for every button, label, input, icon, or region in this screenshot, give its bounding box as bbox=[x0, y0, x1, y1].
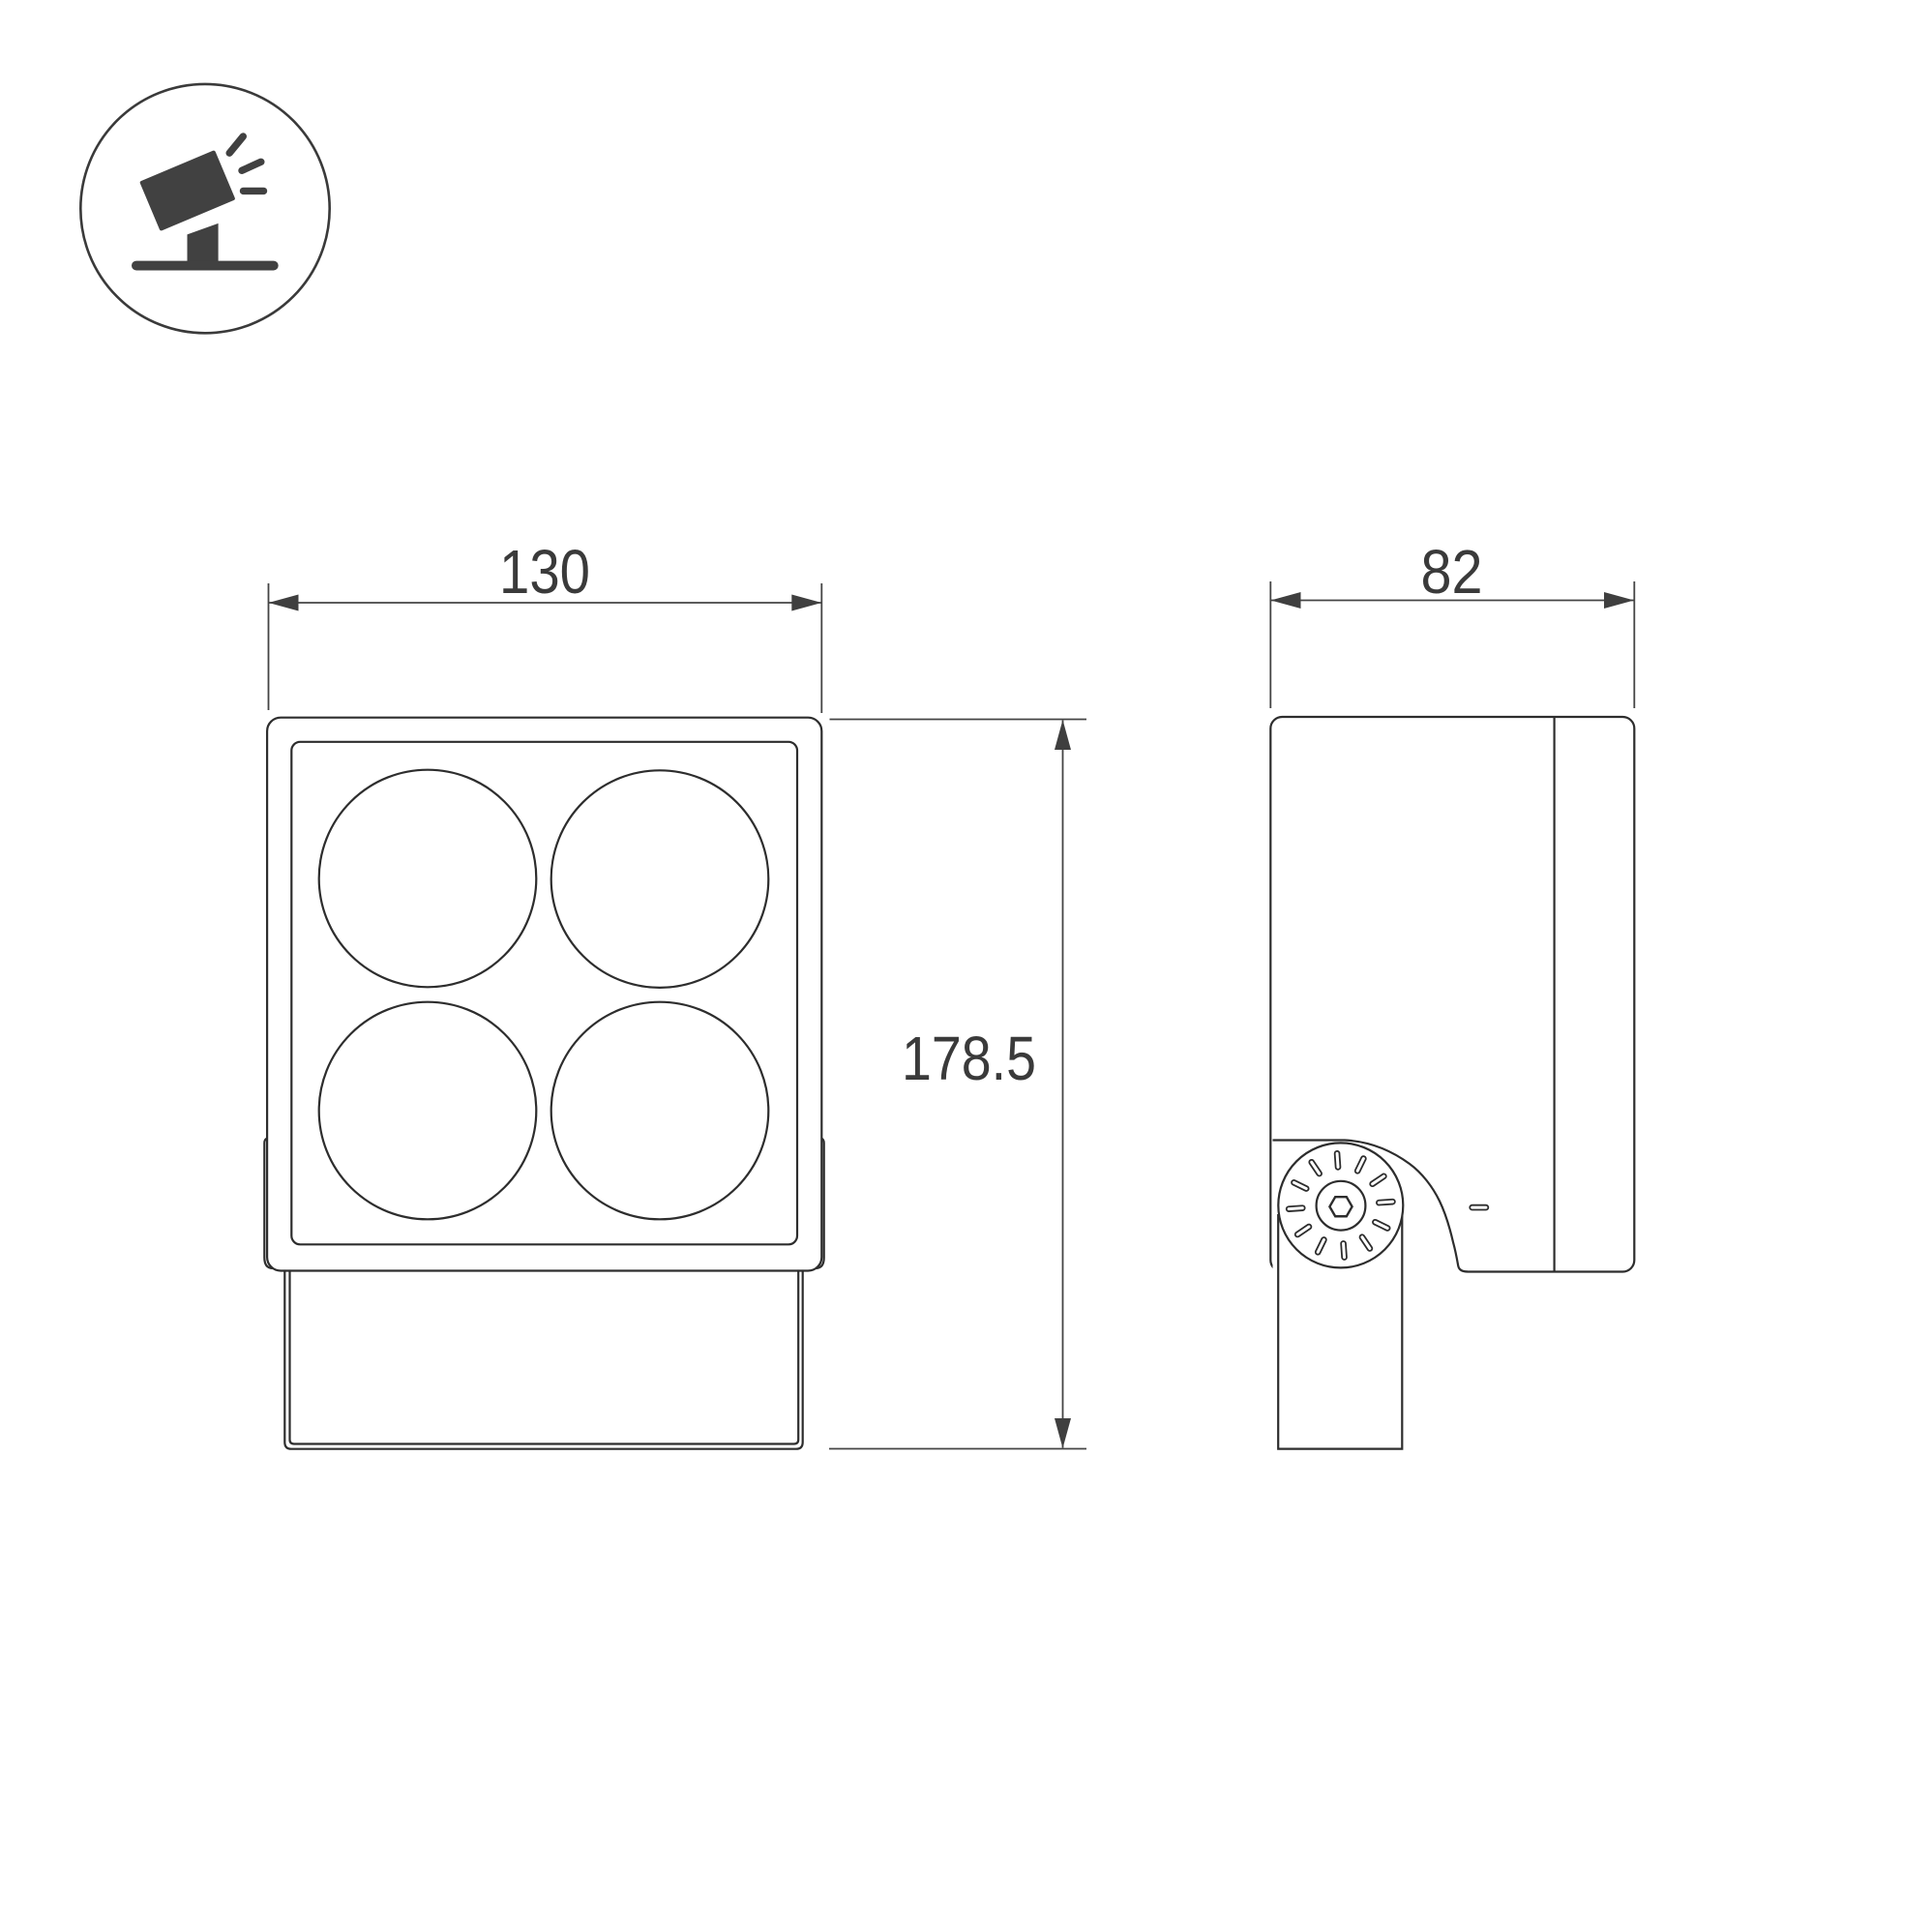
svg-text:130: 130 bbox=[499, 537, 590, 607]
svg-text:178.5: 178.5 bbox=[902, 1024, 1036, 1093]
svg-text:82: 82 bbox=[1421, 537, 1483, 607]
